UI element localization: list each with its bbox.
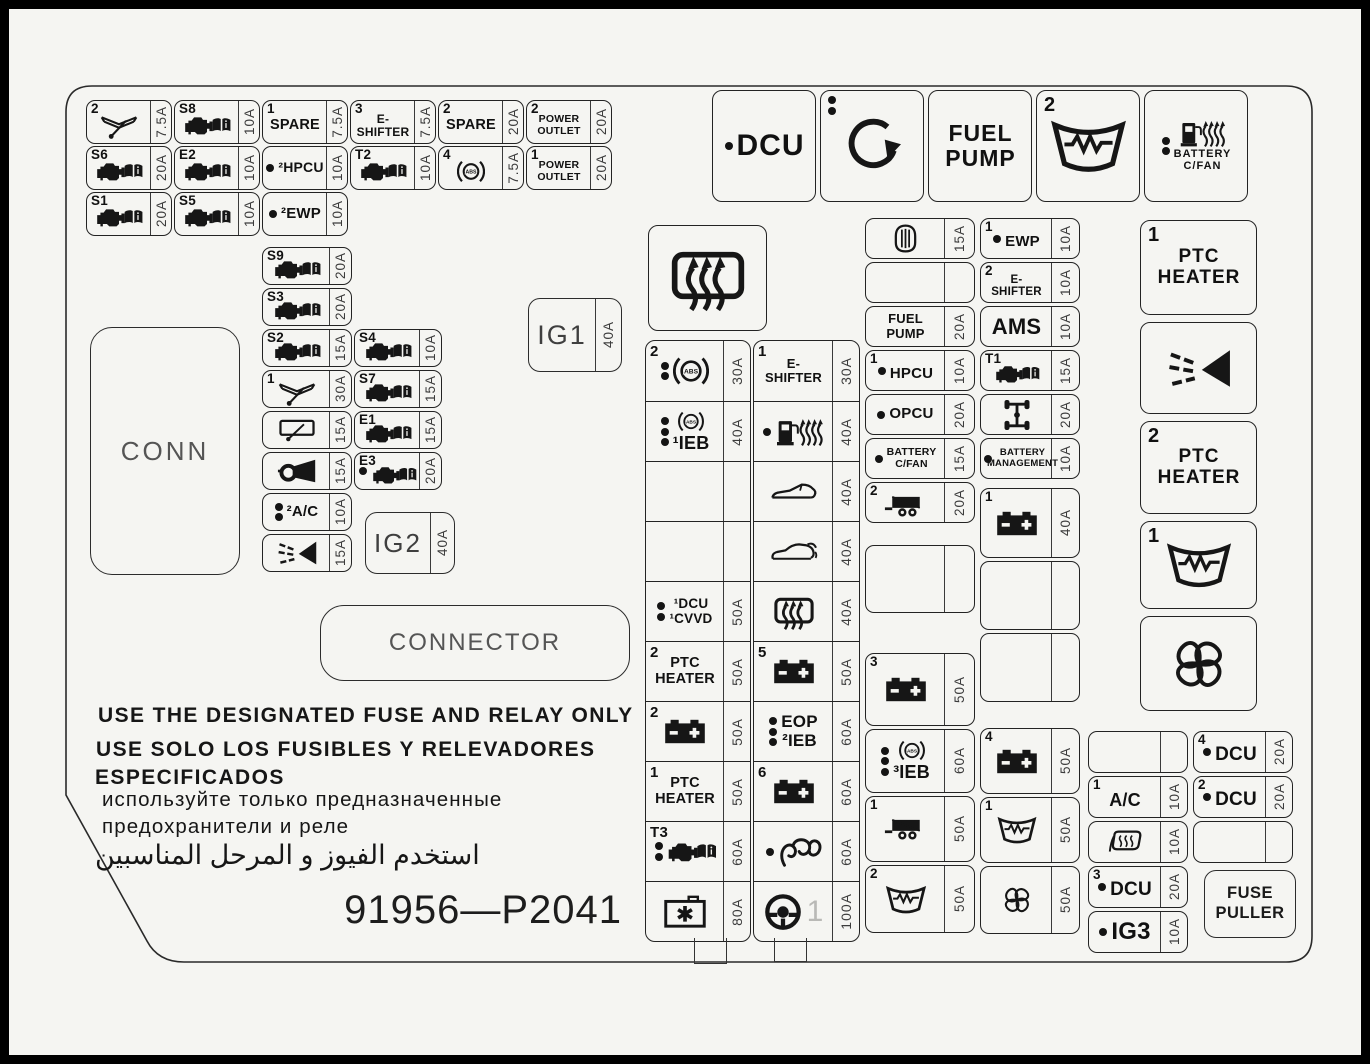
fuse-empty	[1193, 821, 1293, 863]
fuse-2-trailer: 220A	[865, 482, 975, 523]
ghost-index: 1	[807, 895, 824, 929]
svg-text:ABS: ABS	[466, 169, 477, 175]
abs-icon: ABS	[899, 739, 925, 762]
amp-rating: 15A	[944, 439, 974, 478]
heated-windshield-icon	[885, 884, 927, 915]
cell-index: 2	[650, 705, 659, 720]
cell-index: 2	[870, 484, 878, 498]
fuse-ieb: ABS¹IEB40A	[646, 401, 750, 461]
cell-index: 2	[443, 102, 451, 116]
fuse-type-dots	[766, 848, 774, 856]
amp-rating: 40A	[430, 513, 454, 573]
cell-index: S8	[179, 102, 196, 116]
amp-rating: 40A	[1051, 489, 1079, 557]
cell-index: 2	[985, 264, 993, 278]
fan-icon	[1167, 632, 1231, 696]
fuse-s5-engine-book: S510A	[174, 192, 260, 236]
center-fuse-grid-left: 2ABS30AABS¹IEB40A¹DCU¹CVVD50A2PTCHEATER5…	[645, 340, 751, 942]
cell-index: 1	[1148, 225, 1159, 245]
cell-index: 2	[531, 102, 539, 116]
fuse-s4-engine-book: S410A	[354, 329, 442, 367]
amp-rating: 15A	[419, 371, 441, 407]
fuse-type-dots	[769, 717, 777, 746]
amp-rating: 7.5A	[414, 101, 435, 143]
cell-index: 2	[1148, 426, 1159, 446]
amp-rating: 40A	[723, 402, 750, 461]
cell-index: 4	[443, 148, 451, 162]
ig1-fuse: IG1 40A	[528, 298, 622, 372]
left-fuse-column-a: S920AS320AS215A130A15A15A²A/C10A15A	[262, 247, 352, 572]
mounting-tab	[694, 938, 727, 964]
fuse-1-a-c: 1A/C10A	[1088, 776, 1188, 818]
fuse-label: ¹DCU¹CVVD	[669, 597, 712, 626]
cell-index: 1	[985, 799, 993, 813]
amp-rating: 10A	[1160, 822, 1187, 862]
fuse-horn: 15A	[262, 452, 352, 490]
fuse-3-battery: 350A	[865, 653, 975, 726]
amp-rating: 15A	[329, 412, 351, 448]
fuse-label: DCU	[1215, 790, 1257, 811]
fuse-label: FUELPUMP	[945, 121, 1015, 171]
amp-rating: 30A	[329, 371, 351, 407]
engine-book-icon	[994, 364, 1040, 384]
amp-rating: 10A	[1160, 912, 1187, 952]
fuse-puller-line2: PULLER	[1216, 904, 1285, 924]
cell-index: 1	[758, 344, 767, 359]
amp-rating: 15A	[329, 330, 351, 366]
right-relay-column: 1PTCHEATER2PTCHEATER1	[1140, 220, 1257, 711]
cell-index: E2	[179, 148, 196, 162]
rear-defrost-icon	[773, 593, 815, 631]
fuse-4-battery: 450A	[980, 728, 1080, 794]
svg-text:ABS: ABS	[686, 419, 696, 425]
cell-index: 1	[985, 220, 993, 234]
fuse-1-heated-windshield: 150A	[980, 797, 1080, 863]
fuse-type-dots	[993, 235, 1001, 243]
amp-rating: 7.5A	[502, 147, 523, 189]
fuse-empty	[865, 262, 975, 303]
engine-book-icon	[95, 161, 143, 182]
cell-index: 6	[758, 765, 767, 780]
cell-index: 1	[267, 102, 275, 116]
rear-wiper-icon	[277, 418, 317, 442]
wiper-icon	[99, 113, 139, 139]
fuse-type-dots	[875, 455, 883, 463]
amp-rating: 20A	[590, 147, 611, 189]
fuel-heat-icon	[775, 417, 824, 447]
fuse-ams: AMS10A	[980, 306, 1080, 347]
amp-rating	[944, 546, 974, 612]
cell-index: T3	[650, 825, 668, 840]
junction-box-icon	[663, 894, 707, 929]
fuse-label: BATTERYC/FAN	[1174, 149, 1232, 173]
fuse-2-battery: 250A	[646, 701, 750, 761]
fuse-2-dcu: 2DCU20A	[1193, 776, 1293, 818]
cell-index: S7	[359, 372, 376, 386]
fuse-1-power: 1POWEROUTLET20A	[526, 146, 612, 190]
fuse-t2-engine-book: T210A	[350, 146, 436, 190]
middle-fuse-column-b-mid: 140A	[980, 488, 1080, 702]
fuse-e3-engine-book: E320A	[354, 452, 442, 490]
relay-circular-arrow	[820, 90, 924, 202]
fuse-rear-defrost: 40A	[754, 581, 859, 641]
fuse-1-hpcu: 1HPCU10A	[865, 350, 975, 391]
fuse-empty	[865, 545, 975, 613]
amp-rating: 10A	[238, 147, 259, 189]
relay-rear-defrost	[648, 225, 767, 331]
amp-rating: 15A	[1051, 351, 1079, 390]
fuse-label: DCU	[1215, 745, 1257, 766]
amp-rating: 60A	[944, 730, 974, 792]
warning-es1: USE SOLO LOS FUSIBLES Y RELEVADORES	[96, 738, 595, 762]
cell-index: 2	[650, 344, 659, 359]
fuse-heated-mirror: 10A	[1088, 821, 1188, 863]
fuse-label: SPARE	[446, 118, 496, 134]
fuse-type-dots	[661, 362, 669, 381]
cell-index: 1	[985, 490, 993, 504]
cell-index: S4	[359, 331, 376, 345]
fuse-4-dcu: 4DCU20A	[1193, 731, 1293, 773]
amp-rating: 60A	[832, 702, 859, 761]
fuse-fuel: FUELPUMP20A	[865, 306, 975, 347]
fuse-1-e: 1E-SHIFTER30A	[754, 341, 859, 401]
amp-rating: 50A	[723, 762, 750, 821]
warning-ar: استخدم الفيوز و المرحل المناسبين	[95, 840, 480, 871]
warning-en: USE THE DESIGNATED FUSE AND RELAY ONLY	[98, 704, 634, 728]
warning-ru1: используйте только предназначенные	[102, 788, 502, 812]
fuse-junction-box: 80A	[646, 881, 750, 941]
fuse-label: DCU	[737, 130, 805, 162]
amp-rating: 20A	[1160, 867, 1187, 907]
convertible-car-icon	[770, 482, 818, 501]
cell-index: 1	[267, 372, 275, 386]
amp-rating: 20A	[150, 147, 171, 189]
battery-icon	[772, 778, 816, 805]
amp-rating	[944, 263, 974, 302]
fuse-dcu: ¹DCU¹CVVD50A	[646, 581, 750, 641]
fuse-ewp: ²EWP10A	[262, 192, 348, 236]
amp-rating: 50A	[944, 797, 974, 861]
amp-rating: 10A	[419, 330, 441, 366]
battery-icon	[663, 718, 707, 745]
cell-index: 2	[650, 645, 659, 660]
engine-book-icon	[183, 207, 231, 228]
engine-book-icon	[371, 465, 417, 485]
circular-arrow-icon	[845, 117, 901, 175]
fuse-s7-engine-book: S715A	[354, 370, 442, 408]
fuse-label: ²HPCU	[278, 160, 323, 175]
amp-rating: 20A	[1051, 395, 1079, 434]
fuse-1-trailer: 150A	[865, 796, 975, 862]
amp-rating: 50A	[944, 866, 974, 932]
fuse-type-dots	[828, 96, 836, 115]
amp-rating: 20A	[419, 453, 441, 489]
svg-text:ABS: ABS	[684, 368, 699, 375]
washer-spray-icon	[276, 539, 318, 567]
battery-icon	[884, 676, 928, 703]
amp-rating: 40A	[832, 582, 859, 641]
fuse-s3-engine-book: S320A	[262, 288, 352, 326]
fuse-1-ewp: 1EWP10A	[980, 218, 1080, 259]
amp-rating: 7.5A	[150, 101, 171, 143]
fuse-label: E-SHIFTER	[991, 274, 1042, 299]
amp-rating: 15A	[944, 219, 974, 258]
fuse-label: ³IEB	[893, 763, 930, 782]
heated-windshield-icon	[1166, 540, 1232, 590]
amp-rating: 50A	[1051, 867, 1079, 933]
cell-index: 4	[1198, 733, 1206, 747]
fuse-a-c: ²A/C10A	[262, 493, 352, 531]
fuse-steering-wheel: 1100A	[754, 881, 859, 941]
fuse-label: ²EWP	[281, 206, 321, 222]
fuse-1-wiper: 130A	[262, 370, 352, 408]
fuse-2-abs: 2ABS30A	[646, 341, 750, 401]
fuse-label: POWEROUTLET	[537, 160, 580, 183]
fuse-1-battery: 140A	[980, 488, 1080, 558]
amp-rating: 10A	[238, 101, 259, 143]
bottom-right-fuse-column-right: 4DCU20A2DCU20A	[1193, 731, 1293, 863]
ig1-label: IG1	[537, 320, 587, 351]
fuse-type-dots	[1162, 137, 1170, 156]
cell-index: 3	[870, 655, 878, 669]
fuse-type-dots	[877, 411, 885, 419]
fuse-1-ptc: 1PTCHEATER50A	[646, 761, 750, 821]
rear-defrost-relay	[648, 225, 767, 331]
fuse-s6-engine-book: S620A	[86, 146, 172, 190]
middle-fuse-column-a-spare	[865, 545, 975, 613]
fuse-2-spare: 2SPARE20A	[438, 100, 524, 144]
engine-book-icon	[183, 115, 231, 136]
amp-rating: 60A	[723, 822, 750, 881]
amp-rating: 30A	[723, 341, 750, 401]
cell-index: S6	[91, 148, 108, 162]
amp-rating: 50A	[723, 702, 750, 761]
amp-rating: 10A	[329, 494, 351, 530]
fuse-empty	[980, 633, 1080, 702]
battery-icon	[995, 510, 1039, 537]
amp-rating	[1051, 562, 1079, 629]
fuse-type-dots	[657, 602, 665, 621]
amp-rating: 10A	[326, 193, 347, 235]
relay-1-heated-windshield: 1	[1140, 521, 1257, 609]
fuse-label: HPCU	[890, 366, 933, 382]
fuse-opcu: OPCU20A	[865, 394, 975, 435]
hatch-car-icon	[770, 541, 818, 563]
amp-rating: 80A	[723, 882, 750, 941]
fuse-washer-spray: 15A	[262, 534, 352, 572]
amp-rating: 20A	[150, 193, 171, 235]
cell-index: E3	[359, 454, 376, 468]
cell-index: S2	[267, 331, 284, 345]
fuse-label: BATTERYMANAGEMENT	[987, 448, 1058, 469]
fuse-type-dots	[881, 747, 889, 776]
warning-ru2: предохранители и реле	[102, 815, 349, 839]
relay-2-ptc: 2PTCHEATER	[1140, 421, 1257, 514]
fuse-battery: BATTERYC/FAN15A	[865, 438, 975, 479]
amp-rating: 20A	[944, 395, 974, 434]
fuse-empty	[1088, 731, 1188, 773]
amp-rating	[1265, 822, 1292, 862]
battery-icon	[995, 748, 1039, 775]
amp-rating: 10A	[1160, 777, 1187, 817]
amp-rating: 50A	[1051, 798, 1079, 862]
amp-rating: 50A	[723, 582, 750, 641]
amp-rating: 50A	[944, 654, 974, 725]
warning-es2: ESPECIFICADOS	[95, 766, 285, 790]
fuse-2-e: 2E-SHIFTER10A	[980, 262, 1080, 303]
amp-rating: 10A	[1051, 219, 1079, 258]
fan-icon	[1000, 883, 1034, 917]
relay-2-heated-windshield: 2	[1036, 90, 1140, 202]
engine-book-icon	[359, 161, 407, 182]
amp-rating: 50A	[1051, 729, 1079, 793]
fuse-hpcu: ²HPCU10A	[262, 146, 348, 190]
bottom-right-fuse-column-left: 1A/C10A10A3DCU20AIG310A	[1088, 731, 1188, 953]
amp-rating: 50A	[832, 642, 859, 701]
fuse-label: IG3	[1111, 919, 1150, 945]
fuse-fuel-heat: 40A	[754, 401, 859, 461]
fuse-t1-engine-book: T115A	[980, 350, 1080, 391]
amp-rating: 15A	[419, 412, 441, 448]
fuse-e1-engine-book: E115A	[354, 411, 442, 449]
engine-book-icon	[667, 841, 716, 863]
cell-index: 4	[985, 730, 993, 744]
amp-rating: 20A	[502, 101, 523, 143]
fuse-rear-wiper: 15A	[262, 411, 352, 449]
amp-rating: 20A	[329, 289, 351, 325]
fuse-t3-engine-book: T360A	[646, 821, 750, 881]
fuse-type-dots	[661, 417, 669, 446]
washer-spray-icon	[1165, 346, 1233, 391]
fuse-label: POWEROUTLET	[537, 114, 580, 137]
fuse-s9-engine-book: S920A	[262, 247, 352, 285]
cell-index: 1	[1148, 526, 1159, 546]
amp-rating: 10A	[944, 351, 974, 390]
cell-index: 1	[531, 148, 539, 162]
fuse-label: PTCHEATER	[655, 776, 715, 807]
driveline-icon	[1002, 400, 1032, 430]
airbag-icon	[893, 224, 918, 253]
ig2-fuse: IG2 40A	[365, 512, 455, 574]
steering-wheel-icon	[764, 893, 802, 931]
cell-index: 1	[1093, 778, 1101, 792]
fuse-label: DCU	[1110, 880, 1152, 901]
fuse-type-dots	[359, 467, 367, 475]
fuse-2-heated-windshield: 250A	[865, 865, 975, 933]
fuse-label: SPARE	[270, 118, 320, 134]
battery-icon	[772, 658, 816, 685]
amp-rating: 40A	[832, 462, 859, 521]
conn-label: CONN	[121, 436, 210, 467]
fuse-type-dots	[1098, 883, 1106, 891]
cell-index: 3	[355, 102, 363, 116]
center-fuse-grid-right: 1E-SHIFTER30A40A40A40A40A550AEOP²IEB60A6…	[753, 340, 860, 942]
fuel-heat-icon	[1179, 119, 1226, 148]
fuse-type-dots	[655, 842, 663, 861]
cell-index: 2	[870, 867, 878, 881]
fuse-ig3: IG310A	[1088, 911, 1188, 953]
cell-index: 3	[1093, 868, 1101, 882]
abs-icon: ABS	[678, 410, 704, 433]
fuse-label: BATTERYC/FAN	[887, 447, 937, 470]
fuse-label: PTCHEATER	[1158, 247, 1241, 288]
cell-index: T2	[355, 148, 371, 162]
cell-index: S5	[179, 194, 196, 208]
fuse-driveline: 20A	[980, 394, 1080, 435]
amp-rating: 50A	[723, 642, 750, 701]
conn-block: CONN	[90, 327, 240, 575]
fuse-eop: EOP²IEB60A	[754, 701, 859, 761]
fuse-label: A/C	[1109, 791, 1141, 810]
fuse-label: AMS	[992, 315, 1042, 339]
fuse-battery: BATTERYMANAGEMENT10A	[980, 438, 1080, 479]
fuse-s8-engine-book: S810A	[174, 100, 260, 144]
cell-index: 1	[870, 798, 878, 812]
fuse-type-dots	[878, 367, 886, 375]
amp-rating: 10A	[1051, 307, 1079, 346]
amp-rating: 20A	[590, 101, 611, 143]
fuse-glow-coil: 60A	[754, 821, 859, 881]
middle-fuse-column-b-lower: 450A150A50A	[980, 728, 1080, 934]
fuse-2-wiper: 27.5A	[86, 100, 172, 144]
fuse-label: ²A/C	[287, 504, 319, 520]
engine-book-icon	[95, 207, 143, 228]
fuse-label: EOP²IEB	[781, 713, 818, 750]
fuse-type-dots	[269, 210, 277, 218]
ig2-label: IG2	[374, 528, 422, 559]
amp-rating	[1160, 732, 1187, 772]
fuse-ieb: ABS³IEB60A	[865, 729, 975, 793]
cell-index: 2	[91, 102, 99, 116]
fuse-type-dots	[763, 428, 771, 436]
middle-fuse-column-b-upper: 1EWP10A2E-SHIFTER10AAMS10AT115A20ABATTER…	[980, 218, 1080, 479]
glow-coil-icon	[778, 836, 822, 867]
amp-rating: 40A	[832, 522, 859, 581]
top-left-fuse-grid: 27.5AS810A1SPARE7.5A3E-SHIFTER7.5A2SPARE…	[86, 100, 612, 236]
connector-block: CONNECTOR	[320, 605, 630, 681]
fuse-s1-engine-book: S120A	[86, 192, 172, 236]
fuse-type-dots	[1203, 748, 1211, 756]
heated-windshield-icon	[1050, 117, 1127, 175]
fuse-puller-line1: FUSE	[1227, 884, 1273, 904]
wiper-icon	[277, 380, 317, 406]
amp-rating: 15A	[329, 453, 351, 489]
amp-rating: 7.5A	[326, 101, 347, 143]
fuse-convertible-car: 40A	[754, 461, 859, 521]
amp-rating: 20A	[944, 483, 974, 522]
amp-rating: 10A	[326, 147, 347, 189]
amp-rating: 60A	[832, 762, 859, 821]
connector-label: CONNECTOR	[389, 629, 561, 657]
fuse-type-dots	[266, 164, 274, 172]
cell-index: 2	[1198, 778, 1206, 792]
trailer-icon	[884, 816, 928, 842]
amp-rating	[723, 462, 750, 521]
fuse-e2-engine-book: E210A	[174, 146, 260, 190]
abs-icon: ABS	[457, 159, 485, 184]
amp-rating: 10A	[238, 193, 259, 235]
fuse-label: FUELPUMP	[886, 312, 924, 340]
fuse-puller-box: FUSE PULLER	[1204, 870, 1296, 938]
fuse-1-spare: 1SPARE7.5A	[262, 100, 348, 144]
heated-windshield-icon	[997, 815, 1037, 845]
svg-text:ABS: ABS	[906, 749, 916, 755]
amp-rating: 100A	[832, 882, 859, 941]
fuse-label: ¹IEB	[673, 434, 710, 453]
fuse-label: PTCHEATER	[1158, 447, 1241, 488]
relay-battery: BATTERYC/FAN	[1144, 90, 1248, 202]
fuse-s2-engine-book: S215A	[262, 329, 352, 367]
